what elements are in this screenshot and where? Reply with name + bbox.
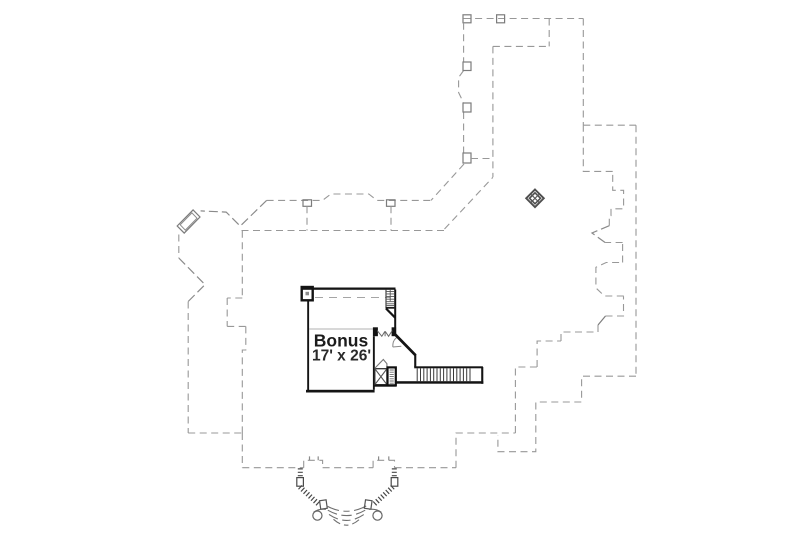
svg-text:17' x 26': 17' x 26'	[312, 348, 371, 365]
